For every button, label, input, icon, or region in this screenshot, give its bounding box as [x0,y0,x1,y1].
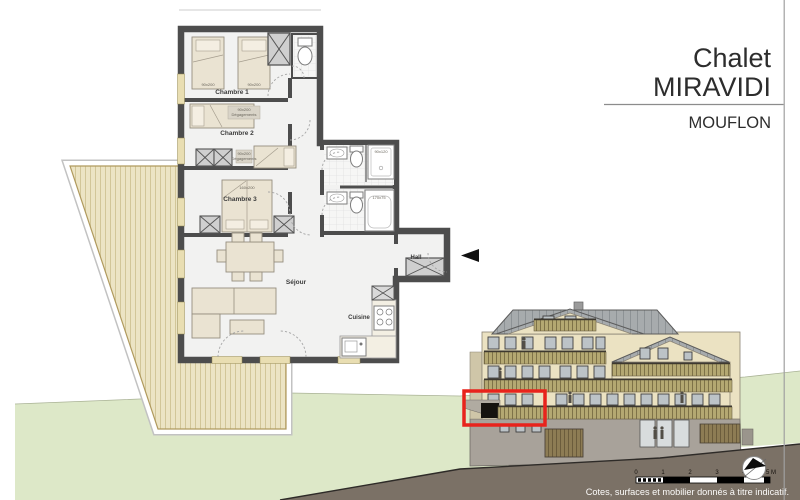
plan-sheet: Chambre 1 Chambre 2 Chambre 3 Séjour Cui… [0,0,800,500]
dim-note-2b: Dégagements [232,156,257,161]
room-label-sejour: Séjour [286,279,307,286]
wood-fence [700,424,740,443]
window-row-2 [488,366,605,378]
unit-name: MOUFLON [689,114,772,132]
room-label-chambre-1: Chambre 1 [215,89,249,96]
dim-bed-1: 90x200 [201,82,215,87]
dim-bed-2: 90x200 [247,82,261,87]
room-label-hall: Hall [410,255,421,261]
floor-plan: Chambre 1 Chambre 2 Chambre 3 Séjour Cui… [178,29,448,364]
room-label-chambre-2: Chambre 2 [220,130,254,137]
unit-terrace-opening [481,403,499,418]
project-title-line2: MIRAVIDI [653,72,771,102]
building-elevation [464,302,753,466]
north-arrow-icon [743,457,767,480]
entrance-arrow-icon [461,249,479,262]
toilet-1 [351,151,363,167]
gable-balcony [534,320,596,331]
drawing-canvas: Chambre 1 Chambre 2 Chambre 3 Séjour Cui… [0,0,800,500]
garage-door [545,429,583,457]
room-label-cuisine: Cuisine [348,315,370,321]
room-label-chambre-3: Chambre 3 [223,196,257,203]
dim-double-bed: 160x200 [239,185,255,190]
footer-disclaimer: Cotes, surfaces et mobilier donnés à tit… [586,487,789,497]
dining-table [226,242,274,272]
coffee-table [230,320,264,334]
dim-shower: 90x120 [374,149,388,154]
balcony-level-3 [484,352,606,364]
dim-bathtub: 170x75 [372,195,386,200]
scale-label-5: 5 M [766,470,776,476]
project-title-line1: Chalet [693,43,772,73]
dim-note-1b: Dégagements [232,112,257,117]
window-row-3 [488,337,605,349]
balcony-ground [498,407,732,419]
right-wing-balcony [612,364,730,376]
toilet-2 [351,197,363,213]
wc-toilet [298,47,312,65]
